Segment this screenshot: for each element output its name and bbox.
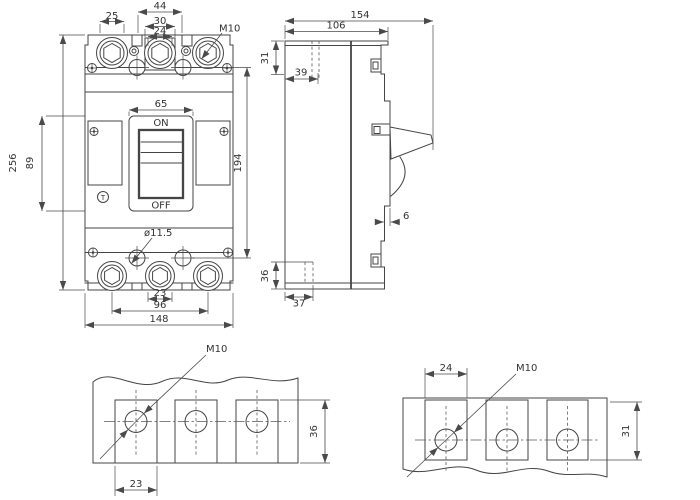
mounting-hole-callout: ø11.5 xyxy=(144,228,172,239)
dim-256: 256 xyxy=(8,153,19,172)
thread-callout: M10 xyxy=(516,363,537,374)
dim-31-side: 31 xyxy=(260,52,271,65)
side-view: 154 106 31 39 6 36 37 xyxy=(260,10,433,310)
side-profile xyxy=(381,41,390,289)
dim-154: 154 xyxy=(350,10,369,21)
dim-89: 89 xyxy=(25,157,36,170)
side-clip xyxy=(371,254,381,267)
dim-65: 65 xyxy=(155,99,168,110)
dim-23: 23 xyxy=(154,288,167,299)
dim-106: 106 xyxy=(326,21,345,32)
lever-travel-arc xyxy=(391,157,405,196)
dim-39: 39 xyxy=(295,68,308,79)
barrier-screw xyxy=(130,47,139,56)
dim-148: 148 xyxy=(149,314,168,325)
toggle-lever[interactable] xyxy=(390,127,433,159)
dim-44: 44 xyxy=(154,1,167,12)
trip-button[interactable]: T xyxy=(98,192,109,203)
terminal-lug xyxy=(97,38,128,69)
mccb-outline-drawing: ON OFF T xyxy=(0,0,700,500)
pad-screw xyxy=(220,128,228,136)
trip-button-label: T xyxy=(100,194,106,202)
terminal-lug xyxy=(194,262,223,291)
escutcheon: ON OFF xyxy=(129,116,193,212)
terminal-detail-side: 24 M10 31 xyxy=(403,363,642,477)
dim-37: 37 xyxy=(293,299,306,310)
side-clip xyxy=(371,59,381,72)
top-terminals xyxy=(97,38,224,69)
pad-screw xyxy=(90,128,98,136)
dim-23-detail: 23 xyxy=(130,479,143,490)
barrier-tab xyxy=(132,35,142,46)
busbar-strip xyxy=(403,398,607,477)
terminal-lug xyxy=(145,38,176,69)
barrier-screw xyxy=(182,47,191,56)
dim-24-detail: 24 xyxy=(440,363,453,374)
barrier-tab xyxy=(182,35,192,46)
terminal-lug xyxy=(98,262,127,291)
dim-194: 194 xyxy=(233,153,244,172)
dim-96: 96 xyxy=(154,300,167,311)
terminal-thread-callout: M10 xyxy=(219,24,240,35)
handle-off-label: OFF xyxy=(151,201,171,212)
barrier-tab xyxy=(132,283,142,290)
dim-31-detail: 31 xyxy=(621,425,632,438)
busbar-strip xyxy=(93,377,298,463)
terminal-detail-front: M10 23 36 xyxy=(93,344,330,496)
terminal-lug xyxy=(146,262,175,291)
side-dimensions: 154 106 31 39 6 36 37 xyxy=(260,10,433,310)
dim-25: 25 xyxy=(106,11,119,22)
handle-on-label: ON xyxy=(153,118,168,129)
dim-36-detail: 36 xyxy=(309,425,320,438)
barrier-tab xyxy=(182,283,192,290)
terminal-lug xyxy=(193,38,224,69)
front-view: ON OFF T xyxy=(8,1,251,328)
side-clip xyxy=(372,124,390,135)
thread-callout: M10 xyxy=(206,344,227,355)
bottom-terminals xyxy=(98,262,223,291)
dim-36-side: 36 xyxy=(260,270,271,283)
dim-6: 6 xyxy=(403,211,409,222)
drawing-canvas: ON OFF T xyxy=(0,0,700,500)
dim-24: 24 xyxy=(154,26,167,37)
